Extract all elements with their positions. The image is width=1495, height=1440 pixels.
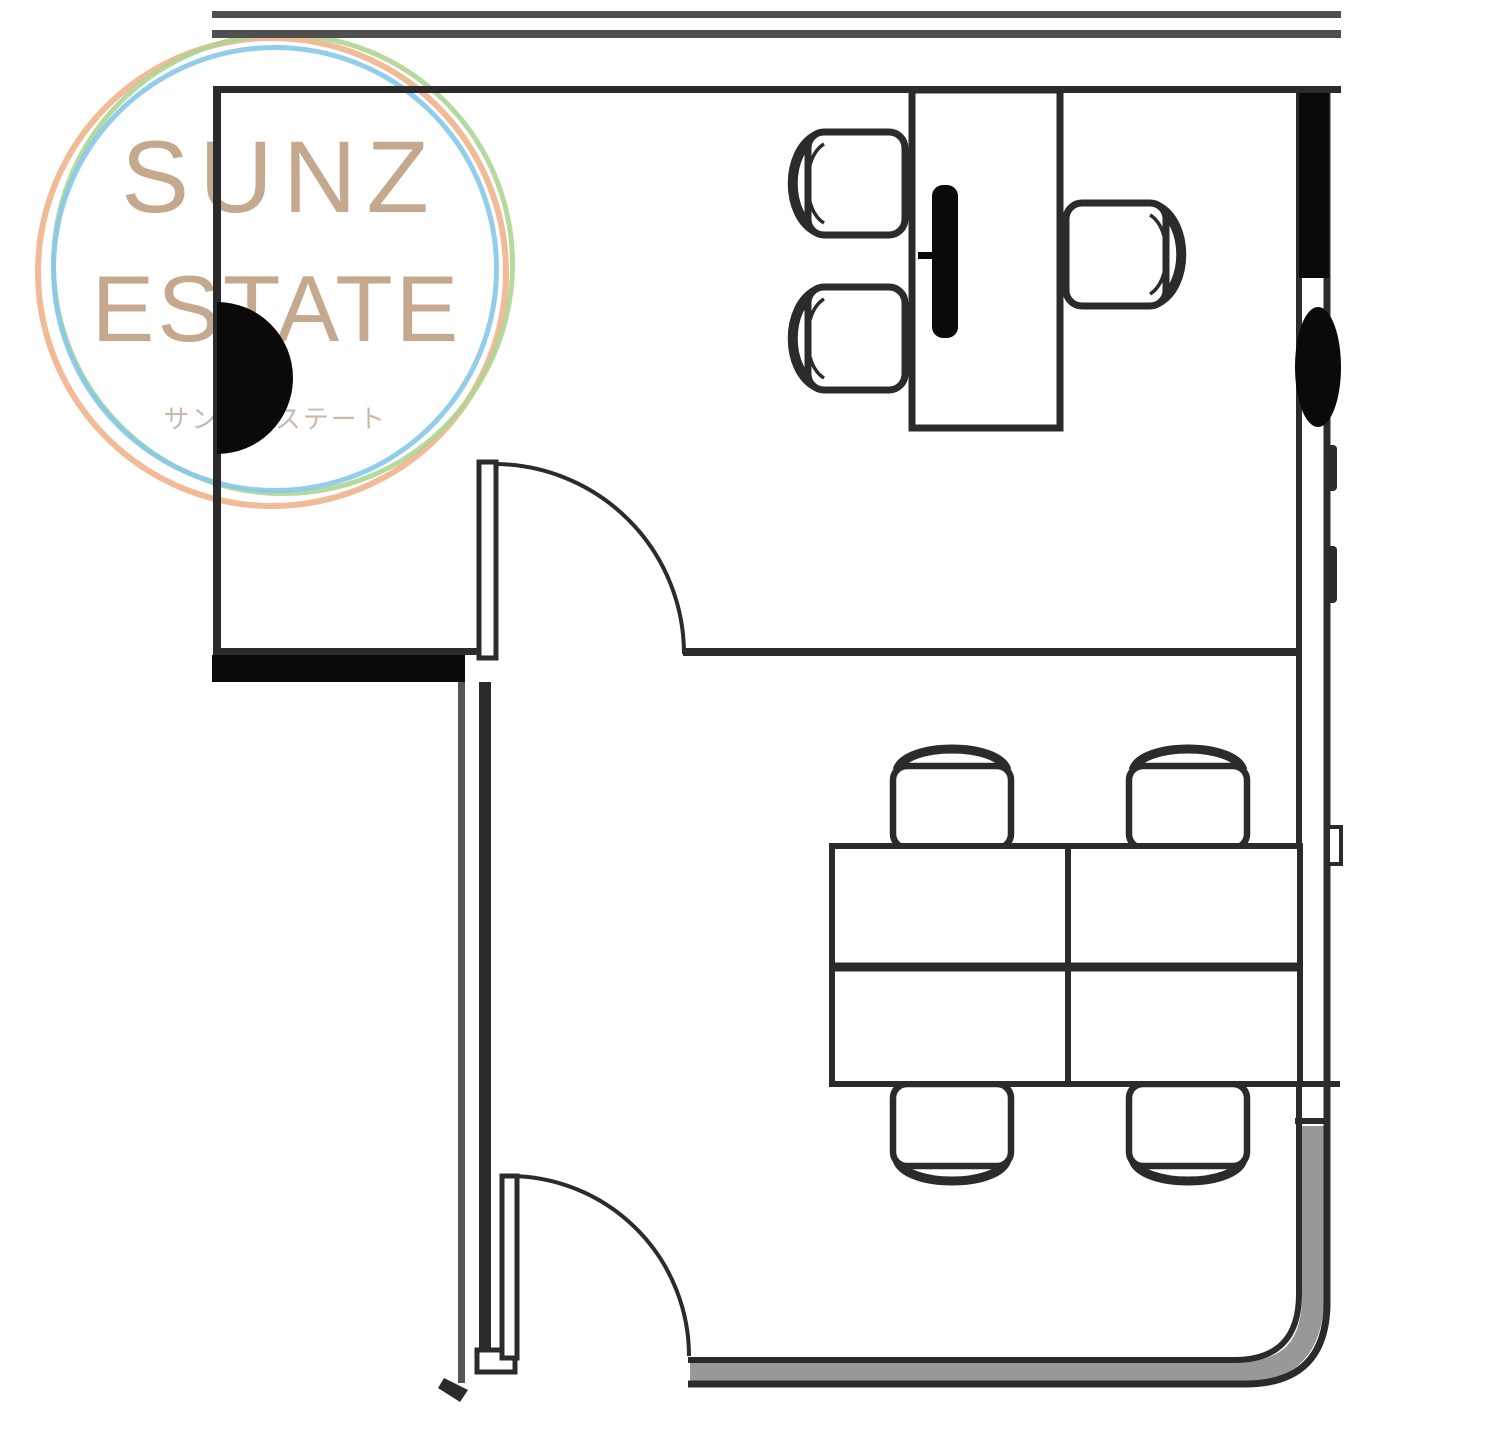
desk-chair-1 — [793, 132, 905, 235]
table-chair-bottom-right-seat — [1129, 1084, 1247, 1166]
right-wall-bracket-mark — [1328, 827, 1341, 864]
exterior-wall-stripe-2 — [212, 30, 1341, 38]
left-wall-column-dot — [217, 302, 293, 454]
room2-door-leaf — [502, 1176, 517, 1358]
table-chair-top-left — [893, 749, 1011, 848]
room1-door-leaf — [479, 462, 496, 658]
room1-door-swing-arc — [494, 464, 684, 654]
right-wall-fixture-mark-1 — [1324, 445, 1337, 491]
exterior-wall-stripe-1 — [212, 11, 1341, 18]
desk-monitor-arm — [918, 252, 934, 259]
desk-chair-3 — [1066, 203, 1181, 306]
table-chair-top-right-seat — [1129, 766, 1247, 848]
table-chair-top-left-seat — [893, 766, 1011, 848]
divider-wall-right — [683, 648, 1301, 656]
desk-chair-3-seat — [1066, 203, 1166, 306]
room1-door — [479, 462, 684, 658]
room2-left-wall-outer-line — [458, 682, 465, 1383]
room1-top-wall — [214, 86, 1341, 93]
room2-left-wall-inner-line — [479, 682, 491, 1355]
room2-door-swing-arc — [509, 1176, 689, 1356]
divider-wall-thick-black — [212, 655, 465, 682]
desk-chair-2 — [793, 287, 905, 390]
divider-wall-thin-left — [214, 648, 483, 655]
right-wall-column-dot — [1295, 307, 1341, 427]
right-wall-fixture-mark-2 — [1324, 546, 1337, 603]
right-wall-solid-segment — [1299, 93, 1329, 278]
table-chair-bottom-left-seat — [893, 1084, 1011, 1166]
right-wall-crossbar-lower — [1295, 1118, 1328, 1124]
floor-plan-drawing — [0, 0, 1495, 1440]
table-chair-bottom-right — [1129, 1084, 1247, 1181]
room2-door — [502, 1176, 689, 1358]
desk-chair-2-seat — [808, 287, 905, 390]
table-chair-bottom-left — [893, 1084, 1011, 1181]
desk-monitor — [932, 185, 958, 338]
meeting-table — [832, 846, 1300, 1084]
desk-chair-1-seat — [808, 132, 905, 235]
floor-plan-page: SUNZ ESTATE サンズエステート — [0, 0, 1495, 1440]
exterior-top-wall — [212, 11, 1341, 38]
table-chair-top-right — [1129, 749, 1247, 848]
